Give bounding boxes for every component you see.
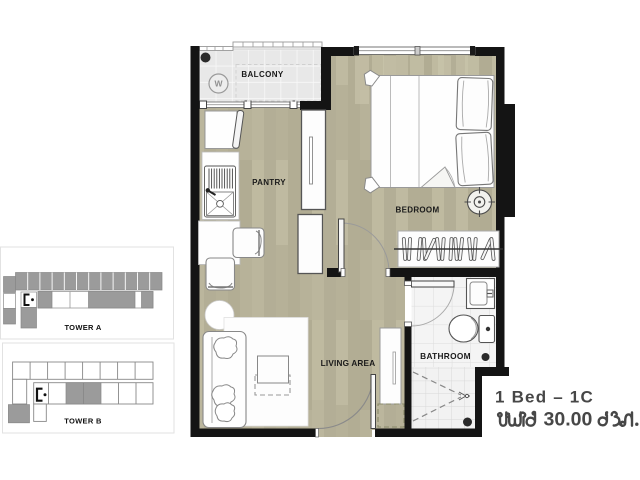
svg-text:BEDROOM: BEDROOM xyxy=(396,206,440,215)
svg-text:W: W xyxy=(214,79,223,89)
svg-text:TOWER A: TOWER A xyxy=(64,323,101,332)
svg-text:LIVING AREA: LIVING AREA xyxy=(321,359,376,368)
svg-text:BATHROOM: BATHROOM xyxy=(420,351,471,361)
svg-text:30.00: 30.00 xyxy=(544,409,593,431)
svg-text:PANTRY: PANTRY xyxy=(252,178,286,187)
svg-text:TOWER B: TOWER B xyxy=(64,417,102,426)
svg-text:1 Bed – 1C: 1 Bed – 1C xyxy=(495,388,594,407)
svg-text:BALCONY: BALCONY xyxy=(241,70,284,79)
